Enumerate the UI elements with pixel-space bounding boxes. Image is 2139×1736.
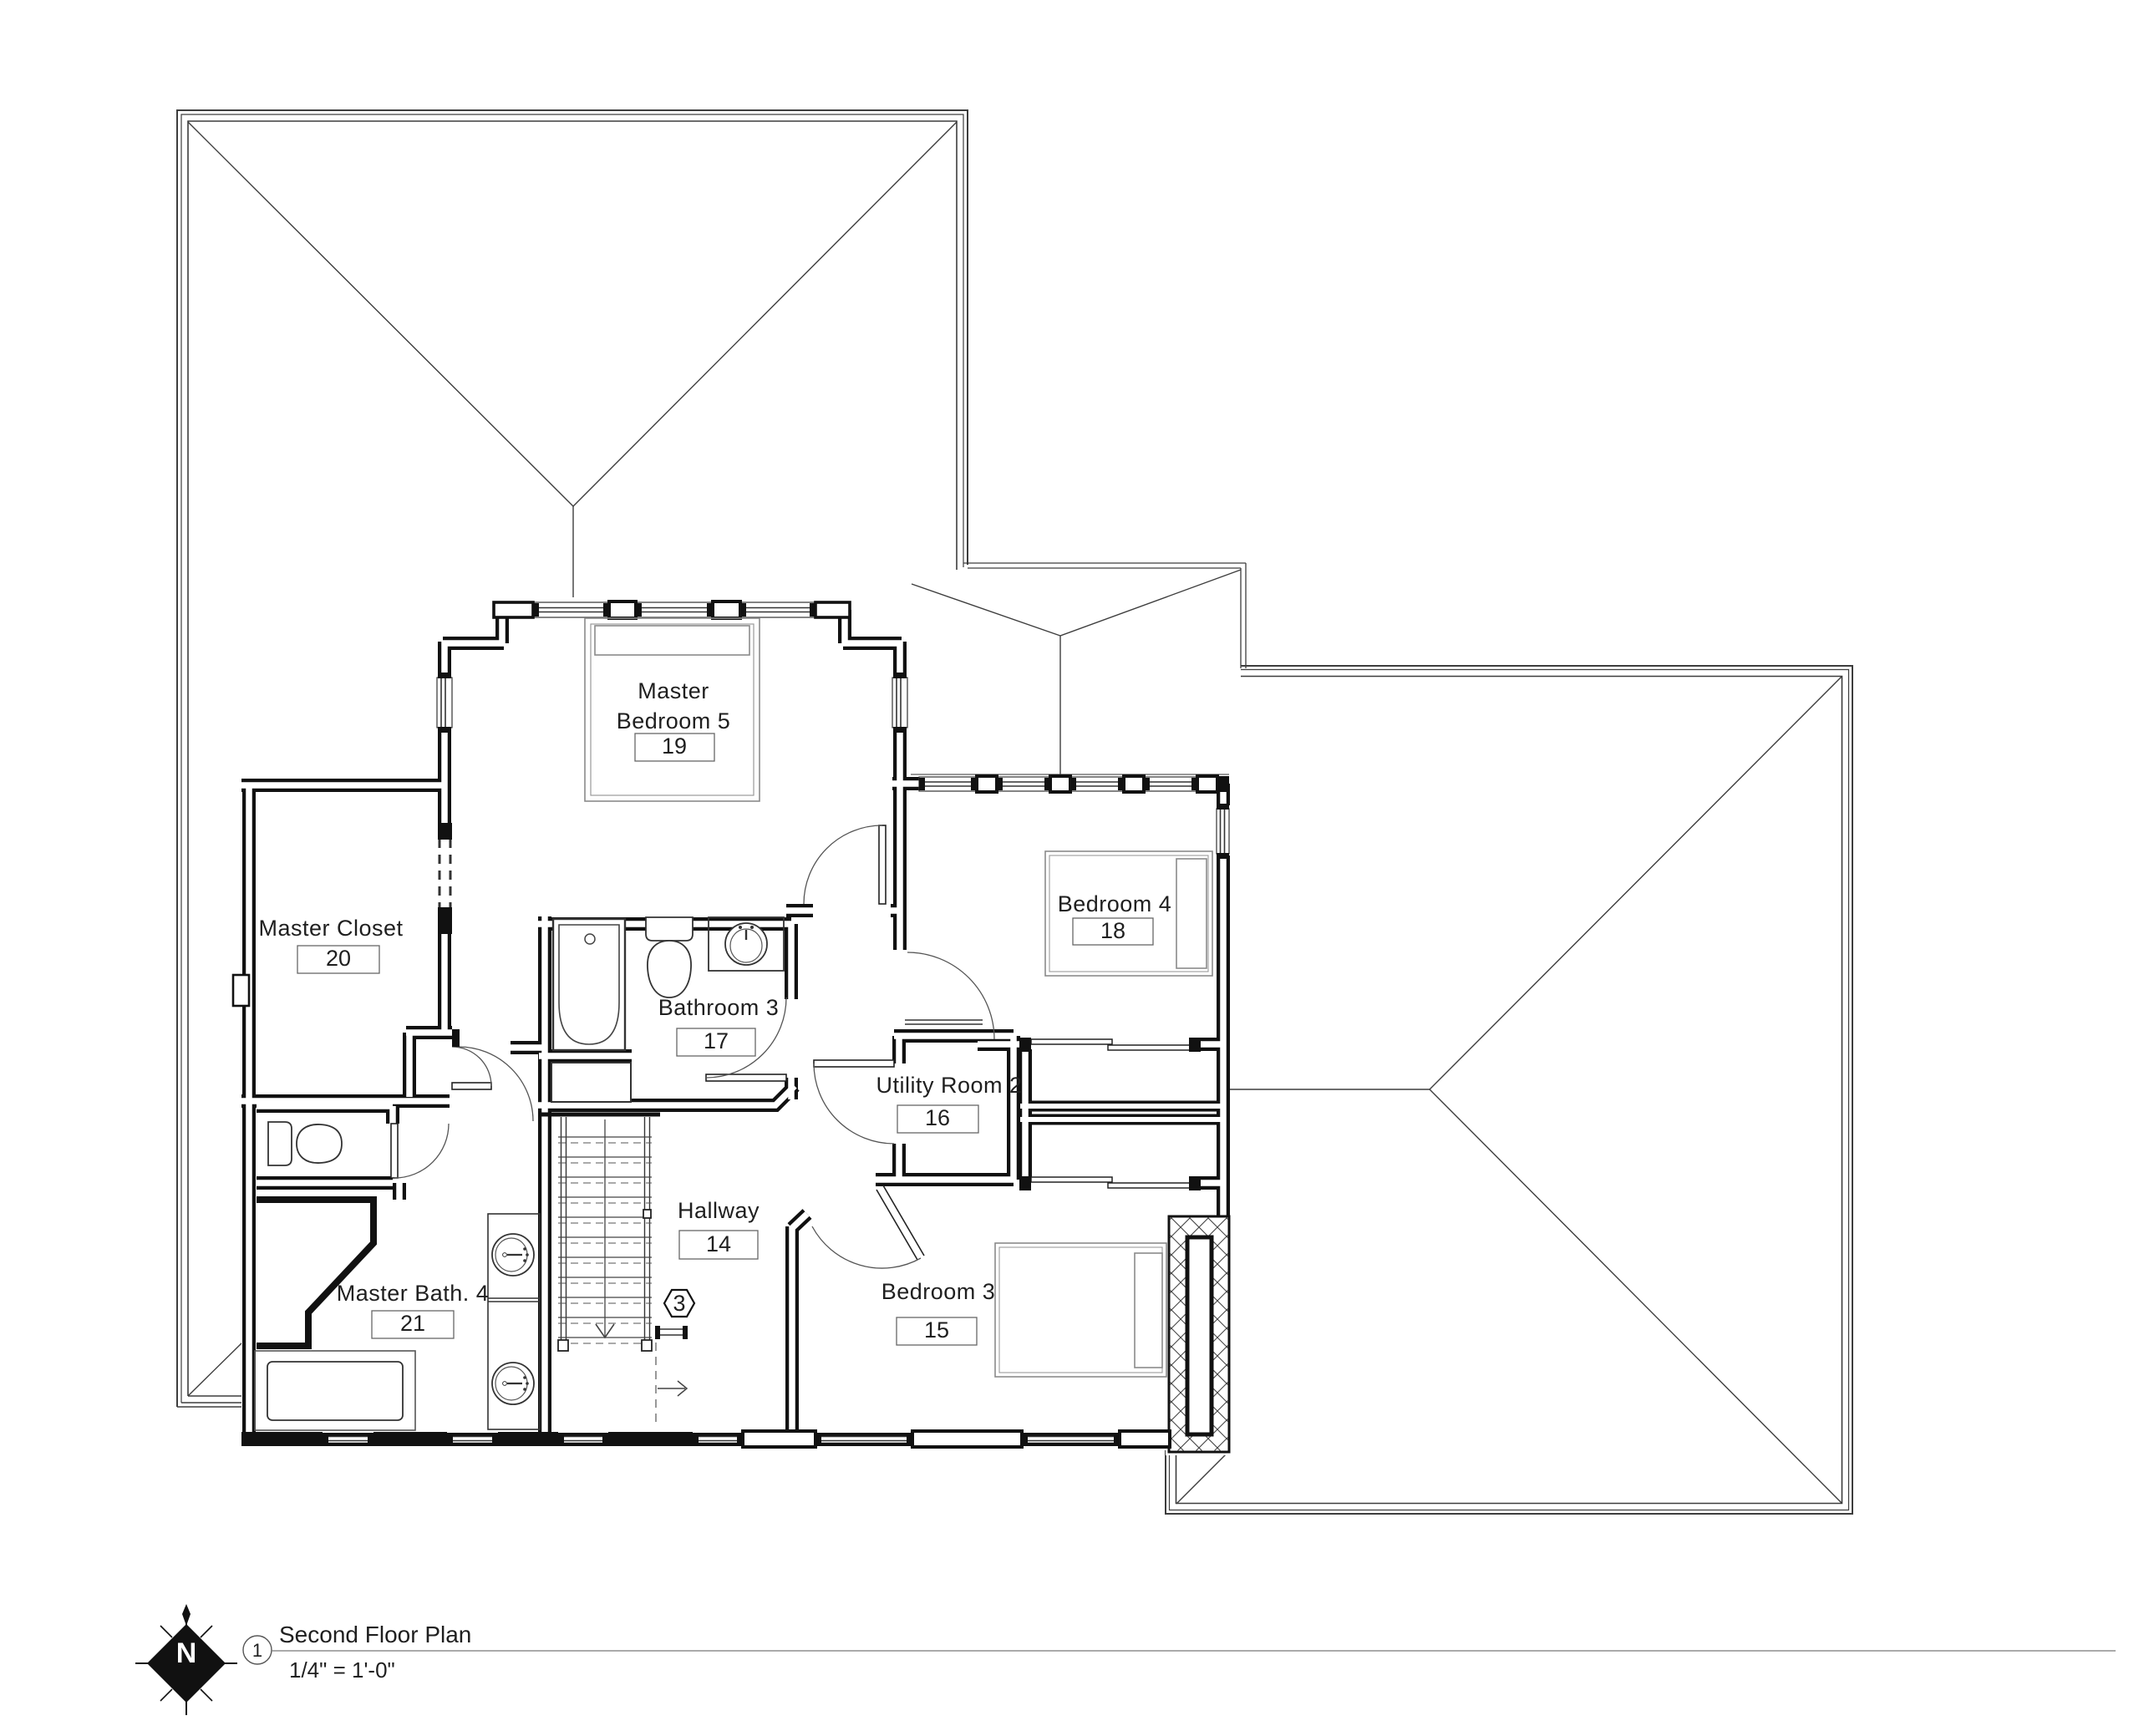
svg-text:Bedroom 5: Bedroom 5 [617, 708, 731, 733]
svg-text:Bathroom 3: Bathroom 3 [658, 995, 780, 1020]
svg-text:19: 19 [662, 733, 687, 759]
svg-text:20: 20 [326, 946, 351, 971]
svg-text:15: 15 [924, 1317, 949, 1343]
svg-text:17: 17 [704, 1028, 729, 1053]
svg-text:14: 14 [706, 1231, 731, 1256]
svg-text:18: 18 [1100, 918, 1125, 943]
svg-text:Bedroom 3: Bedroom 3 [882, 1279, 996, 1304]
svg-text:1: 1 [252, 1640, 262, 1661]
svg-text:Master Bath. 4: Master Bath. 4 [337, 1281, 490, 1306]
svg-text:Utility Room 2: Utility Room 2 [876, 1073, 1022, 1098]
svg-text:21: 21 [400, 1311, 425, 1336]
svg-text:3: 3 [673, 1291, 685, 1316]
svg-text:Hallway: Hallway [678, 1198, 760, 1223]
svg-text:Bedroom 4: Bedroom 4 [1058, 891, 1172, 916]
svg-text:N: N [176, 1637, 197, 1669]
svg-text:Master Closet: Master Closet [258, 916, 403, 941]
svg-text:Master: Master [638, 678, 709, 703]
svg-text:16: 16 [925, 1105, 950, 1130]
svg-text:Second Floor Plan: Second Floor Plan [279, 1622, 471, 1647]
svg-text:1/4" = 1'-0": 1/4" = 1'-0" [289, 1657, 395, 1683]
